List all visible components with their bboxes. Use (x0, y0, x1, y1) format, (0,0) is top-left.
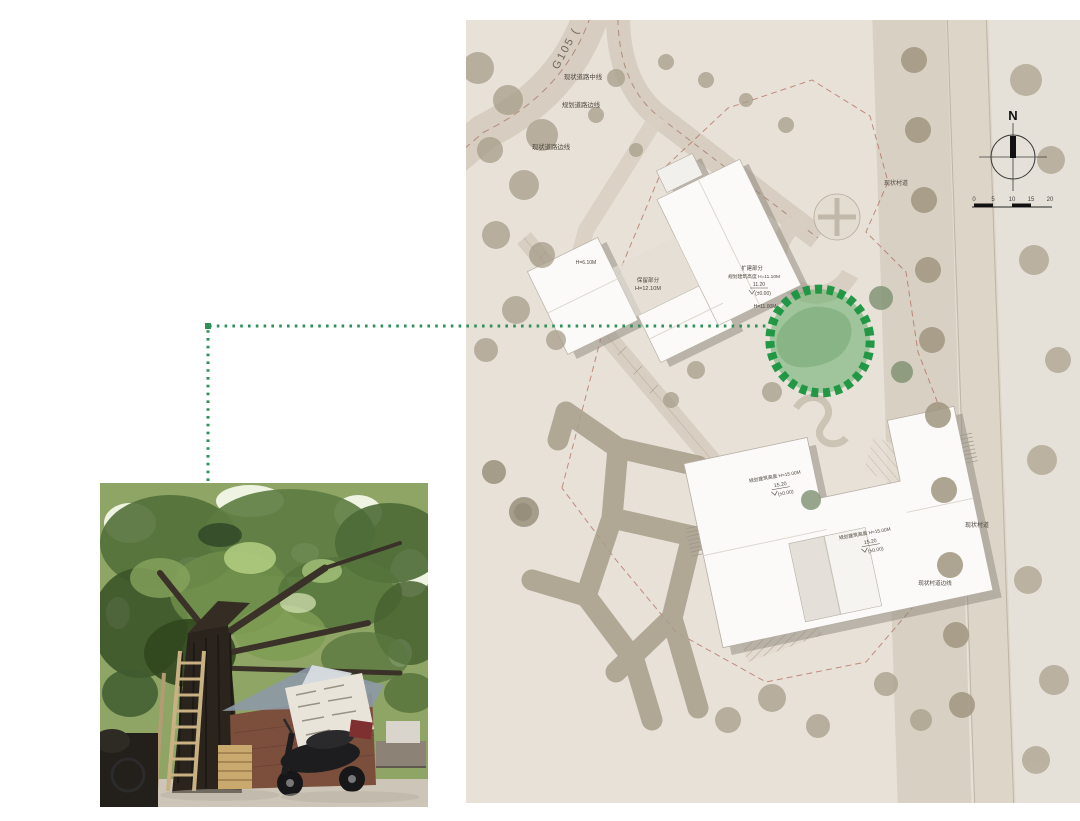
leader-corner-dot (205, 323, 211, 329)
label-left-block-height: H=6.10M (576, 260, 596, 266)
label-existing-road-edge: 现状道路边线 (532, 142, 571, 151)
pallet-stack (218, 745, 252, 789)
label-existing-road-centerline: 现状道路中线 (564, 72, 603, 81)
scale-tick: 20 (1047, 197, 1054, 203)
label-extension-height: 规划建筑高度 H=11.10M (728, 273, 780, 280)
photo-inset-banyan-tree (100, 483, 428, 807)
label-planned-road-edge: 规划道路边线 (562, 100, 601, 109)
photo-drawing (100, 483, 428, 807)
label-retained-height: H=12.10M (635, 286, 661, 292)
north-label: N (1008, 108, 1017, 123)
label-extension-level: 11.20 (753, 282, 765, 288)
label-extension-datum: (±0.00) (755, 291, 771, 297)
scale-tick: 10 (1009, 197, 1016, 203)
site-plan: G105 ( 现状道路中线 规划道路边线 现状道路边线 现状村道 现状村道 现状… (466, 20, 1080, 803)
label-extension-part: 扩建部分 (741, 264, 763, 272)
site-plan-drawing: G105 ( 现状道路中线 规划道路边线 现状道路边线 现状村道 现状村道 现状… (466, 20, 1080, 803)
label-village-road-bottom: 现状村道 (965, 521, 989, 529)
page: G105 ( 现状道路中线 规划道路边线 现状道路边线 现状村道 现状村道 现状… (0, 0, 1080, 821)
label-retained-part: 保留部分 (637, 276, 660, 284)
label-east-wing-height: H=11.00M (754, 304, 777, 310)
scale-tick: 15 (1028, 197, 1035, 203)
label-village-road-edge-bottom: 现状村道边线 (918, 579, 952, 587)
label-village-road-right: 现状村道 (884, 179, 908, 187)
